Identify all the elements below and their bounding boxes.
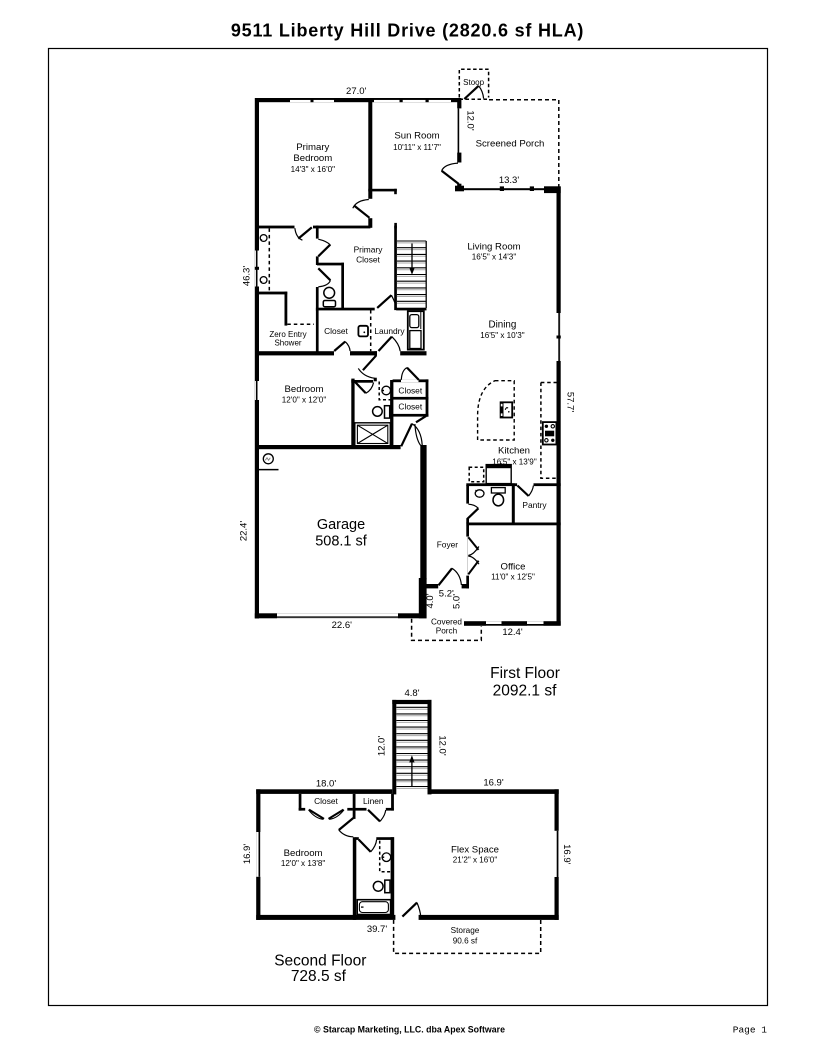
svg-text:2092.1 sf: 2092.1 sf bbox=[493, 683, 557, 700]
svg-text:728.5 sf: 728.5 sf bbox=[291, 968, 347, 985]
svg-text:Closet: Closet bbox=[398, 402, 422, 412]
svg-text:Closet: Closet bbox=[314, 796, 338, 806]
svg-text:Linen: Linen bbox=[363, 796, 384, 806]
svg-text:16'5" x 14'3": 16'5" x 14'3" bbox=[472, 253, 517, 262]
svg-text:4.0': 4.0' bbox=[425, 593, 436, 608]
svg-text:16'5" x 10'3": 16'5" x 10'3" bbox=[480, 331, 525, 340]
svg-text:Page 1: Page 1 bbox=[733, 1025, 768, 1036]
svg-text:Office: Office bbox=[501, 561, 526, 572]
svg-text:10'11" x 11'7": 10'11" x 11'7" bbox=[393, 143, 441, 152]
svg-text:Bedroom: Bedroom bbox=[293, 153, 332, 164]
svg-text:57.7': 57.7' bbox=[565, 392, 576, 412]
svg-text:14'3" x 16'0": 14'3" x 16'0" bbox=[291, 165, 336, 174]
svg-text:12.0': 12.0' bbox=[465, 110, 476, 130]
svg-text:4.8': 4.8' bbox=[404, 688, 419, 699]
svg-text:Sun Room: Sun Room bbox=[394, 130, 439, 141]
svg-text:Stoop: Stoop bbox=[463, 78, 484, 87]
svg-text:12'0" x 12'0": 12'0" x 12'0" bbox=[282, 396, 327, 405]
svg-text:39.7': 39.7' bbox=[367, 924, 387, 935]
svg-text:Flex Space: Flex Space bbox=[451, 844, 499, 855]
svg-text:18.0': 18.0' bbox=[316, 778, 336, 789]
svg-text:16.9': 16.9' bbox=[242, 844, 253, 864]
svg-text:5.0': 5.0' bbox=[452, 594, 463, 609]
svg-text:11'0" x 12'5": 11'0" x 12'5" bbox=[491, 573, 535, 582]
svg-text:Bedroom: Bedroom bbox=[284, 848, 323, 859]
svg-text:Closet: Closet bbox=[398, 385, 422, 395]
svg-text:22.4': 22.4' bbox=[239, 521, 250, 541]
svg-text:12.4': 12.4' bbox=[502, 627, 522, 638]
svg-text:Bedroom: Bedroom bbox=[285, 384, 324, 395]
svg-text:90.6 sf: 90.6 sf bbox=[453, 937, 478, 946]
svg-text:Dining: Dining bbox=[489, 320, 517, 331]
svg-text:508.1 sf: 508.1 sf bbox=[315, 534, 368, 550]
svg-text:Primary: Primary bbox=[354, 244, 384, 254]
svg-text:46.3': 46.3' bbox=[242, 266, 253, 286]
svg-text:12.0': 12.0' bbox=[377, 736, 388, 756]
svg-text:Shower: Shower bbox=[274, 339, 301, 348]
svg-text:22.6': 22.6' bbox=[332, 620, 352, 631]
svg-text:21'2" x 16'0": 21'2" x 16'0" bbox=[453, 855, 498, 864]
svg-text:16.9': 16.9' bbox=[483, 778, 503, 789]
svg-text:Storage: Storage bbox=[451, 926, 480, 935]
svg-text:Laundry: Laundry bbox=[374, 326, 405, 336]
svg-text:12'0" x 13'8": 12'0" x 13'8" bbox=[281, 859, 326, 868]
svg-text:Screened Porch: Screened Porch bbox=[476, 139, 545, 150]
svg-text:12.0': 12.0' bbox=[437, 735, 448, 755]
svg-text:27.0': 27.0' bbox=[346, 86, 366, 97]
svg-text:16.9': 16.9' bbox=[561, 844, 572, 864]
svg-text:Closet: Closet bbox=[356, 255, 380, 265]
svg-text:Primary: Primary bbox=[296, 142, 329, 153]
svg-text:Covered: Covered bbox=[431, 617, 462, 626]
svg-text:Pantry: Pantry bbox=[522, 500, 547, 510]
svg-text:Garage: Garage bbox=[317, 517, 365, 533]
svg-text:9511 Liberty Hill Drive (2820.: 9511 Liberty Hill Drive (2820.6 sf HLA) bbox=[231, 21, 584, 41]
svg-text:Foyer: Foyer bbox=[437, 539, 459, 549]
svg-text:Closet: Closet bbox=[324, 326, 348, 336]
svg-text:Kitchen: Kitchen bbox=[498, 445, 530, 456]
svg-text:Porch: Porch bbox=[436, 627, 458, 636]
svg-text:Living Room: Living Room bbox=[467, 241, 520, 252]
svg-text:© Starcap Marketing, LLC. dba: © Starcap Marketing, LLC. dba Apex Softw… bbox=[314, 1025, 505, 1035]
svg-text:13.3': 13.3' bbox=[499, 175, 519, 186]
svg-text:First Floor: First Floor bbox=[490, 665, 560, 682]
